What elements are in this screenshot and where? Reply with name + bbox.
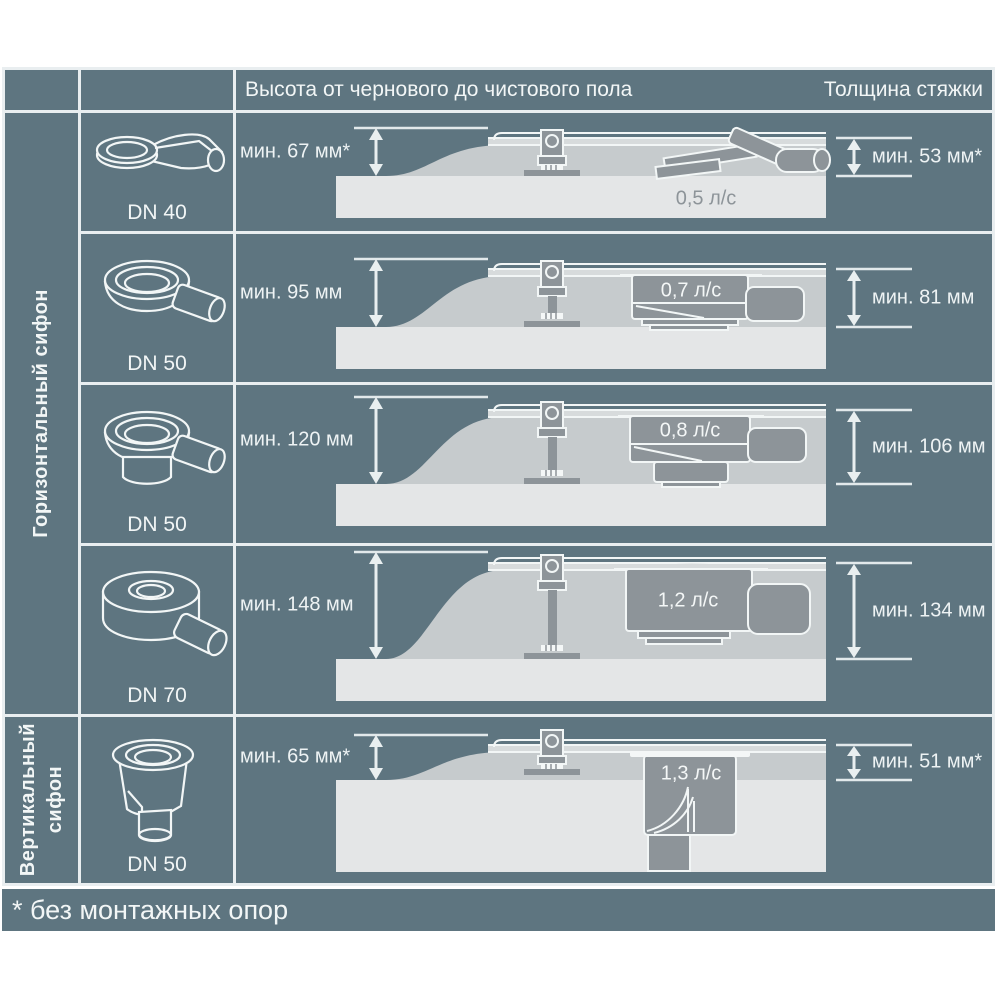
siphon-dn50-tall-icon	[81, 391, 233, 513]
flow-rate-label: 1,2 л/с	[658, 590, 719, 613]
horizontal-siphon-label: Горизонтальный сифон	[28, 289, 55, 538]
cross-section-illustration	[236, 113, 992, 231]
siphon-table: Высота от чернового до чистового пола То…	[2, 67, 995, 886]
siphon-dn50-icon	[81, 240, 233, 352]
cross-section-row-dn50-vertical: мин. 65 мм* 1,3 л/с мин. 51 мм*	[236, 717, 992, 883]
min-height-label: мин. 65 мм*	[240, 746, 350, 769]
min-screed-label: мин. 106 мм	[872, 436, 986, 459]
flow-rate-label: 0,8 л/с	[660, 420, 721, 443]
min-height-label: мин. 67 мм*	[240, 141, 350, 164]
cross-section-illustration	[236, 717, 992, 883]
siphon-image-cell: DN 50	[81, 717, 233, 883]
cross-section-illustration	[236, 546, 992, 714]
siphon-dn50-vertical-icon	[81, 723, 233, 853]
installation-diagram: Высота от чернового до чистового пола То…	[0, 0, 1000, 1000]
min-screed-label: мин. 51 мм*	[872, 751, 982, 774]
siphon-image-cell: DN 40	[81, 113, 233, 231]
dn-label: DN 40	[81, 201, 233, 225]
cross-section-row-dn50: мин. 95 мм 0,7 л/с мин. 81 мм	[236, 234, 992, 382]
min-height-label: мин. 120 мм	[240, 429, 354, 452]
header-screed-label: Толщина стяжки	[824, 78, 983, 102]
min-screed-label: мин. 53 мм*	[872, 146, 982, 169]
header-row: Высота от чернового до чистового пола То…	[236, 70, 992, 110]
siphon-dn40-icon	[81, 119, 233, 203]
flow-rate-label: 0,5 л/с	[676, 188, 737, 211]
cross-section-row-dn70: мин. 148 мм 1,2 л/с мин. 134 мм	[236, 546, 992, 714]
header-corner-cell	[5, 70, 78, 110]
dn-label: DN 50	[81, 513, 233, 537]
siphon-image-cell: DN 50	[81, 385, 233, 543]
siphon-image-cell: DN 50	[81, 234, 233, 382]
siphon-image-cell: DN 70	[81, 546, 233, 714]
min-height-label: мин. 95 мм	[240, 282, 342, 305]
cross-section-row-dn50-tall: мин. 120 мм 0,8 л/с мин. 106 мм	[236, 385, 992, 543]
dn-label: DN 50	[81, 352, 233, 376]
siphon-dn70-icon	[81, 552, 233, 684]
dn-label: DN 50	[81, 853, 233, 877]
cross-section-illustration	[236, 385, 992, 543]
min-screed-label: мин. 81 мм	[872, 287, 974, 310]
flow-rate-label: 0,7 л/с	[661, 280, 722, 303]
min-height-label: мин. 148 мм	[240, 594, 354, 617]
flow-rate-label: 1,3 л/с	[661, 763, 722, 786]
section-vertical-siphon: Вертикальный сифон	[5, 717, 78, 883]
vertical-siphon-label: Вертикальный сифон	[15, 723, 69, 876]
section-horizontal-siphon: Горизонтальный сифон	[5, 113, 78, 714]
min-screed-label: мин. 134 мм	[872, 600, 986, 623]
dn-label: DN 70	[81, 684, 233, 708]
cross-section-row-dn40: мин. 67 мм* 0,5 л/с мин. 53 мм*	[236, 113, 992, 231]
footnote-text: * без монтажных опор	[12, 895, 288, 926]
header-height-label: Высота от чернового до чистового пола	[245, 78, 632, 102]
header-image-cell	[81, 70, 233, 110]
footnote-band: * без монтажных опор	[2, 889, 995, 931]
